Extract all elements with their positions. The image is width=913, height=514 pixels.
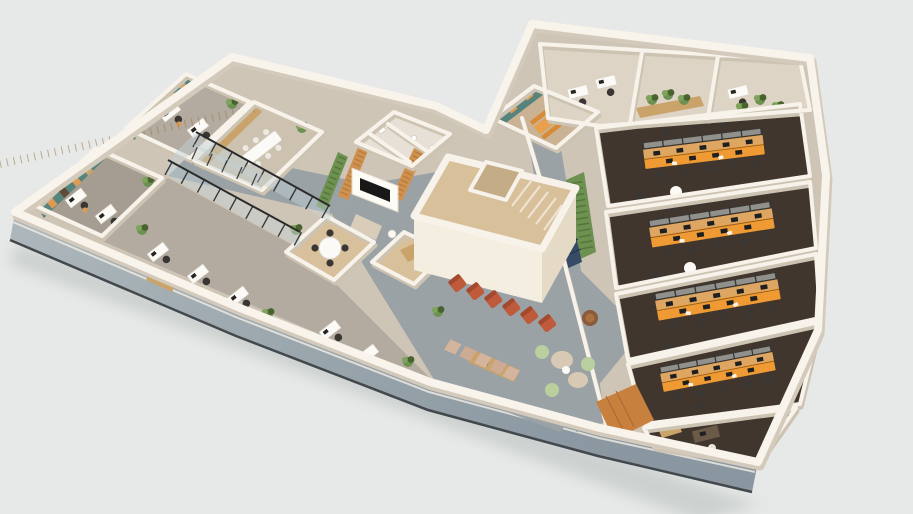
render-stage <box>0 0 913 514</box>
pouf <box>581 357 595 371</box>
round-table <box>319 237 341 259</box>
pouf <box>545 383 559 397</box>
lounge-seat <box>568 372 588 388</box>
lounge-seat <box>551 351 573 369</box>
pouf <box>535 345 549 359</box>
floor-plan-render <box>0 0 913 514</box>
